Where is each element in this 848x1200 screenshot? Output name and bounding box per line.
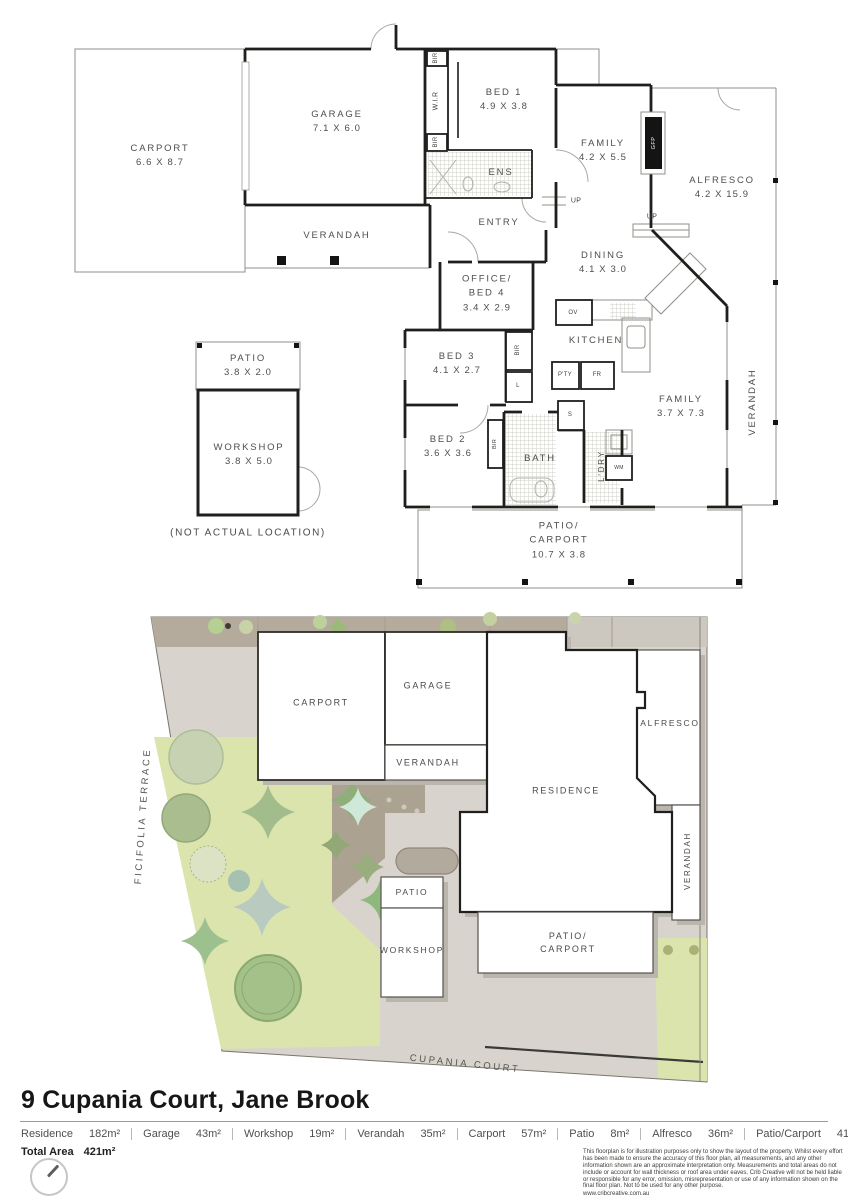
- disclaimer-body: This floorplan is for illustration purpo…: [583, 1149, 845, 1190]
- room-label-patio-carport: PATIO/CARPORT10.7 X 3.8: [530, 520, 589, 563]
- site-label-residence: RESIDENCE: [532, 784, 600, 797]
- oven-label: OV: [568, 310, 577, 316]
- bir-label: BIR: [433, 137, 439, 148]
- room-label-workshop: WORKSHOP3.8 X 5.0: [214, 441, 285, 470]
- floorplan-page: CARPORT6.6 X 8.7 GARAGE7.1 X 6.0 VERANDA…: [0, 0, 848, 1200]
- room-label-bed1: BED 14.9 X 3.8: [480, 86, 528, 115]
- room-label-carport: CARPORT6.6 X 8.7: [131, 142, 190, 171]
- site-label-workshop: WORKSHOP: [380, 944, 444, 956]
- room-label-garage: GARAGE7.1 X 6.0: [311, 108, 362, 137]
- room-label-ldry: L'DRY: [596, 450, 608, 482]
- area-item: Carport57m²: [457, 1128, 558, 1140]
- bir-label: BIR: [492, 439, 498, 449]
- wir-label: W.I.R: [433, 92, 440, 111]
- workshop-location-note: (NOT ACTUAL LOCATION): [170, 528, 326, 539]
- room-label-patio: PATIO3.8 X 2.0: [224, 352, 272, 381]
- area-item: Verandah35m²: [345, 1128, 456, 1140]
- compass-needle: [47, 1165, 59, 1178]
- area-item: Patio8m²: [557, 1128, 640, 1140]
- area-item: Workshop19m²: [232, 1128, 345, 1140]
- total-area: Total Area421m²: [21, 1146, 115, 1158]
- room-label-bed3: BED 34.1 X 2.7: [433, 350, 481, 379]
- area-item: Residence182m²: [21, 1128, 131, 1140]
- site-label-patio: PATIO: [396, 886, 429, 898]
- bir-label: BIR: [515, 345, 521, 356]
- site-label-garage: GARAGE: [404, 679, 453, 692]
- room-label-alfresco: ALFRESCO4.2 X 15.9: [689, 174, 755, 203]
- room-label-bath: BATH: [524, 452, 556, 466]
- gfp-label: GFP: [651, 137, 657, 150]
- disclaimer-text: This floorplan is for illustration purpo…: [583, 1149, 845, 1198]
- room-label-verandah-top: VERANDAH: [303, 229, 370, 243]
- room-label-kitchen: KITCHEN: [569, 334, 623, 348]
- room-label-family-top: FAMILY4.2 X 5.5: [579, 137, 627, 166]
- up-label: UP: [571, 198, 581, 205]
- footer-divider: [20, 1121, 828, 1122]
- north-compass-icon: [30, 1158, 68, 1196]
- room-label-office-bed4: OFFICE/BED 43.4 X 2.9: [462, 273, 512, 316]
- room-label-ens: ENS: [489, 166, 514, 180]
- pantry-label: P'TY: [558, 372, 572, 378]
- room-label-verandah-right: VERANDAH: [746, 368, 760, 435]
- up-label: UP: [647, 214, 657, 221]
- site-label-verandah-side: VERANDAH: [682, 832, 694, 890]
- site-label-carport: CARPORT: [293, 696, 349, 709]
- floor-plan-posts: [197, 178, 778, 585]
- site-label-verandah: VERANDAH: [396, 756, 460, 769]
- bir-label: BIR: [433, 53, 439, 64]
- fridge-label: FR: [593, 372, 602, 378]
- area-item: Patio/Carport41m²: [744, 1128, 848, 1140]
- linen-label: L: [516, 383, 520, 389]
- wm-label: WM: [614, 465, 623, 471]
- site-label-alfresco: ALFRESCO: [640, 717, 699, 729]
- area-item: Garage43m²: [131, 1128, 232, 1140]
- room-label-entry: ENTRY: [478, 216, 519, 230]
- area-item: Alfresco36m²: [640, 1128, 744, 1140]
- room-label-bed2: BED 23.6 X 3.6: [424, 433, 472, 462]
- property-address-title: 9 Cupania Court, Jane Brook: [21, 1086, 370, 1115]
- area-schedule: Residence182m² Garage43m² Workshop19m² V…: [21, 1128, 781, 1140]
- room-label-dining: DINING4.1 X 3.0: [579, 249, 627, 278]
- room-label-family-rear: FAMILY3.7 X 7.3: [657, 393, 705, 422]
- site-label-patio-carport: PATIO/CARPORT: [540, 930, 596, 956]
- website-url: www.cribcreative.com.au: [583, 1191, 845, 1198]
- store-label: S: [568, 412, 572, 418]
